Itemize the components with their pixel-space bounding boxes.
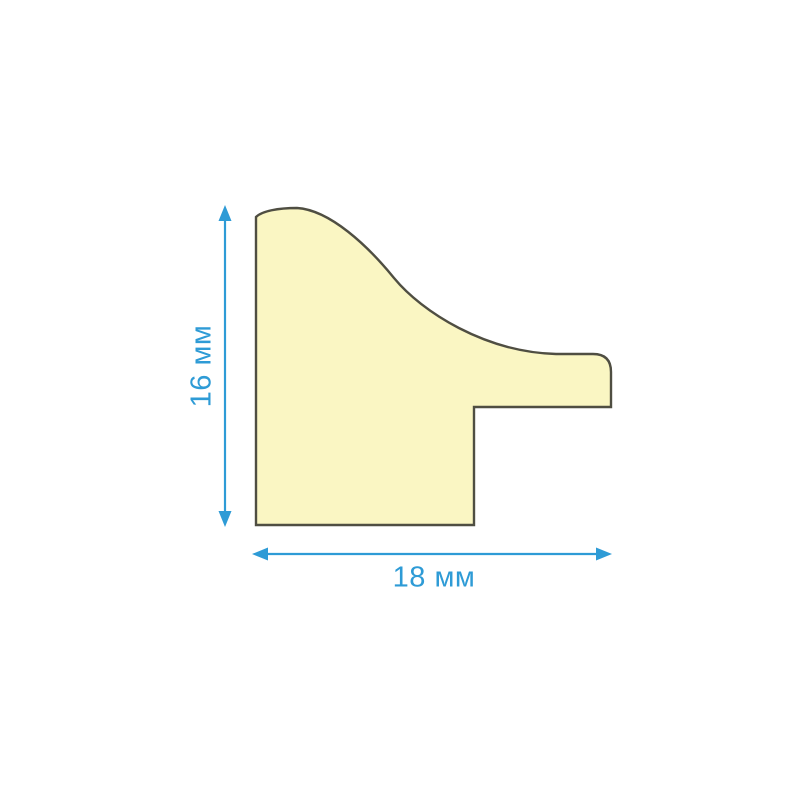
vertical-dimension-arrow <box>219 205 232 527</box>
diagram-drawing <box>0 0 800 800</box>
horizontal-dimension-arrow <box>252 548 612 561</box>
arrow-left-icon <box>252 548 268 561</box>
arrow-down-icon <box>219 511 232 527</box>
width-dimension-label: 18 мм <box>393 562 476 595</box>
arrow-up-icon <box>219 205 232 221</box>
height-dimension-label: 16 мм <box>186 325 219 408</box>
moulding-profile-diagram: 16 мм 18 мм <box>0 0 800 800</box>
moulding-profile-shape <box>256 208 611 525</box>
arrow-right-icon <box>596 548 612 561</box>
